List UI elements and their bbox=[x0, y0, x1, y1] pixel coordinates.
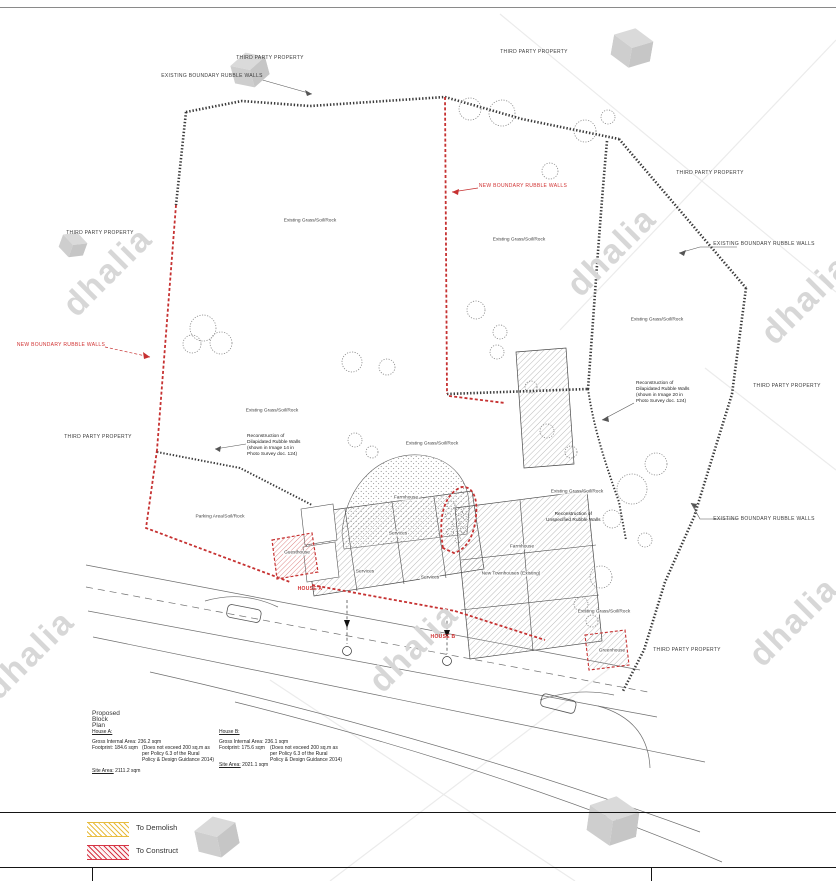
note-line: Photo Survey doc. 124) bbox=[636, 399, 689, 405]
existing-boundary-walls-label: EXISTING BOUNDARY RUBBLE WALLS bbox=[161, 73, 262, 79]
house-b-footprint: Footprint: 175.6 sqm bbox=[219, 745, 265, 751]
house-a-heading: House A: bbox=[92, 729, 112, 735]
guesthouse-label: Guesthouse bbox=[283, 551, 311, 556]
note-line: Unspecified Rubble Walls bbox=[546, 518, 600, 524]
services-label: Services bbox=[355, 570, 375, 575]
title-block-tick bbox=[651, 867, 652, 881]
new-townhouses-label: New Townhouses (Existing) bbox=[481, 572, 542, 577]
site-area-label: Site Area: bbox=[92, 768, 114, 774]
existing-grass-label: Existing Grass/Soil/Rock bbox=[405, 442, 460, 447]
existing-boundary-walls-label: EXISTING BOUNDARY RUBBLE WALLS bbox=[713, 241, 814, 247]
existing-grass-label: Existing Grass/Soil/Rock bbox=[577, 610, 632, 615]
note-line: Policy & Design Guidance 2014) bbox=[270, 757, 342, 763]
reconstruction-note-unspecified: Reconstruction of Unspecified Rubble Wal… bbox=[546, 512, 600, 524]
third-party-property-label: THIRD PARTY PROPERTY bbox=[753, 383, 821, 389]
house-a-site-area: Site Area: 2111.2 sqm bbox=[92, 768, 140, 774]
existing-boundary-walls-label: EXISTING BOUNDARY RUBBLE WALLS bbox=[713, 516, 814, 522]
footprint-value: 184.6 sqm bbox=[115, 745, 138, 751]
legend-divider-line bbox=[0, 812, 836, 813]
third-party-property-label: THIRD PARTY PROPERTY bbox=[653, 647, 721, 653]
house-b-site-area: Site Area: 2021.1 sqm bbox=[219, 762, 268, 768]
third-party-property-label: THIRD PARTY PROPERTY bbox=[676, 170, 744, 176]
reconstruction-note-img14: Reconstruction of Dilapidated Rubble Wal… bbox=[247, 434, 300, 458]
title-block-top-line bbox=[0, 867, 836, 868]
site-plan-page: dhalia dhalia dhalia dhalia dhalia dhali… bbox=[0, 0, 836, 881]
legend-demolish-label: To Demolish bbox=[136, 823, 177, 832]
footprint-label: Footprint: bbox=[219, 745, 240, 751]
reconstruction-note-img20: Reconstruction of Dilapidated Rubble Wal… bbox=[636, 381, 689, 405]
third-party-property-label: THIRD PARTY PROPERTY bbox=[66, 230, 134, 236]
house-a-label: HOUSE A bbox=[297, 586, 324, 592]
farmhouse-label: Farmhouse bbox=[509, 545, 535, 550]
third-party-property-label: THIRD PARTY PROPERTY bbox=[64, 434, 132, 440]
note-line: Photo Survey doc. 124) bbox=[247, 452, 300, 458]
farmhouse-label: Farmhouse bbox=[393, 496, 419, 501]
new-boundary-walls-label: NEW BOUNDARY RUBBLE WALLS bbox=[479, 183, 567, 189]
footprint-label: Footprint: bbox=[92, 745, 113, 751]
existing-grass-label: Existing Grass/Soil/Rock bbox=[550, 490, 605, 495]
site-area-label: Site Area: bbox=[219, 762, 241, 768]
third-party-property-label: THIRD PARTY PROPERTY bbox=[500, 49, 568, 55]
house-b-note: (Does not exceed 200 sq.m as per Policy … bbox=[270, 745, 342, 763]
existing-grass-label: Existing Grass/Soil/Rock bbox=[245, 409, 300, 414]
services-label: Services bbox=[420, 576, 440, 581]
third-party-property-label: THIRD PARTY PROPERTY bbox=[236, 55, 304, 61]
house-b-label: HOUSE B bbox=[430, 634, 457, 640]
plan-title: Proposed Block Plan bbox=[92, 711, 120, 729]
site-area-value: 2021.1 sqm bbox=[242, 762, 268, 768]
annotation-layer: THIRD PARTY PROPERTY THIRD PARTY PROPERT… bbox=[0, 0, 836, 881]
construct-hatch-swatch bbox=[87, 845, 129, 860]
top-border-line bbox=[0, 7, 836, 8]
note-line: Policy & Design Guidance 2014) bbox=[142, 757, 214, 763]
house-b-heading: House B: bbox=[219, 729, 240, 735]
title-block-tick bbox=[92, 867, 93, 881]
existing-grass-label: Existing Grass/Soil/Rock bbox=[492, 238, 547, 243]
site-area-value: 2111.2 sqm bbox=[115, 768, 140, 774]
footprint-value: 175.6 sqm bbox=[242, 745, 265, 751]
existing-grass-label: Existing Grass/Soil/Rock bbox=[283, 219, 338, 224]
greenhouse-label: Greenhouse bbox=[598, 649, 626, 654]
legend-construct-label: To Construct bbox=[136, 846, 178, 855]
services-label: Services bbox=[388, 532, 408, 537]
house-a-note: (Does not exceed 200 sq.m as per Policy … bbox=[142, 745, 214, 763]
parking-area-label: Parking Area/Soil/Rock bbox=[194, 515, 245, 520]
demolish-hatch-swatch bbox=[87, 822, 129, 837]
new-boundary-walls-label: NEW BOUNDARY RUBBLE WALLS bbox=[17, 342, 105, 348]
existing-grass-label: Existing Grass/Soil/Rock bbox=[630, 318, 685, 323]
house-a-footprint: Footprint: 184.6 sqm bbox=[92, 745, 138, 751]
